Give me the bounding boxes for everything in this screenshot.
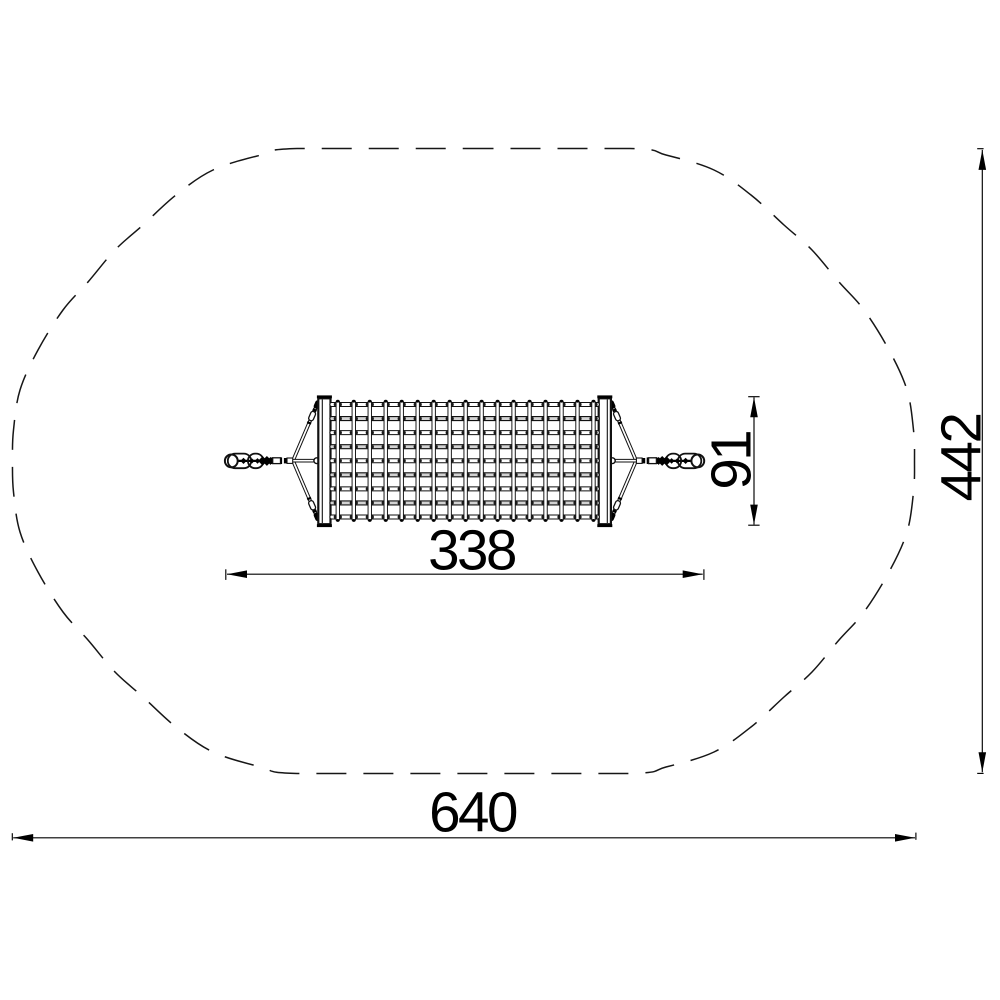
svg-text:91: 91 xyxy=(700,432,763,490)
svg-text:338: 338 xyxy=(428,519,515,582)
svg-text:442: 442 xyxy=(929,415,992,502)
svg-text:640: 640 xyxy=(429,781,517,844)
